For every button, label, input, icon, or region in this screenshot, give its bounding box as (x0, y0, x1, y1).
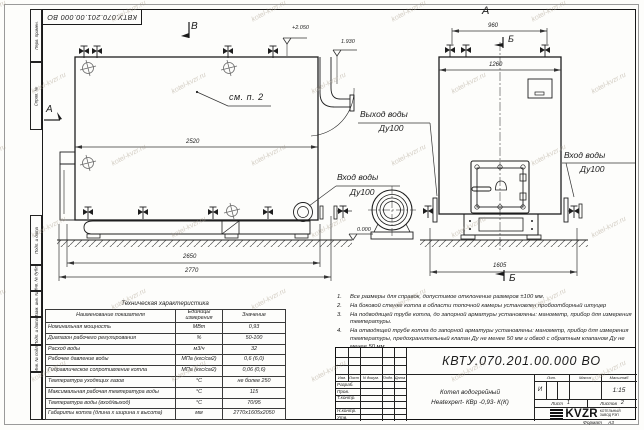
table-row: Расход водым3/ч32 (46, 344, 286, 355)
table-row: Гидравлическое сопротивление котлаМПа (к… (46, 366, 286, 377)
format-label: Формат А3 (583, 421, 614, 426)
col-podp: Подп. (382, 374, 394, 381)
spec-table: Наименование показателя Единицы измерени… (45, 309, 286, 420)
row-nkontr: Н.контр. (337, 409, 365, 414)
col-ndoc: N докум. (360, 374, 382, 381)
kvzr-logo-caption: КОТЕЛЬНЫЙ ЗАВОД РЭП (600, 410, 621, 418)
margin-cell-podp-data-1: Подп. и дата (30, 215, 42, 265)
kvzr-logo: KVZR КОТЕЛЬНЫЙ ЗАВОД РЭП (550, 408, 620, 420)
spec-table-title: Техническая характеристика (45, 300, 285, 307)
dim-960: 960 (488, 23, 498, 29)
elevation-zero: 0.000 (357, 228, 371, 234)
doc-number: КВТУ.070.201.00.000 ВО (406, 348, 637, 374)
table-row: Габариты котла (длина х ширина х высота)… (46, 409, 286, 420)
sheets-cell: Листов 2 (587, 399, 637, 407)
margin-cell-empty (30, 372, 42, 420)
table-row: Диапазон рабочего регулирования%50-100 (46, 333, 286, 344)
product-name: Котел водогрейный Heatexpert- КВр -0,93-… (406, 374, 534, 421)
inlet-right-label-line1: Вход воды (564, 151, 605, 160)
lit-value: И (534, 381, 546, 399)
note-item: 1.Все размеры для справок, допустимое от… (337, 294, 635, 302)
table-row: Номинальная мощностьМВт0,93 (46, 323, 286, 334)
inlet-left-label-line2: Ду100 (350, 188, 375, 197)
sheet-cell: Лист 1 (534, 399, 587, 407)
company-logo-cell: KVZR КОТЕЛЬНЫЙ ЗАВОД РЭП (534, 407, 637, 421)
dim-2650: 2650 (183, 254, 196, 260)
row-razrab: Разраб. (337, 383, 365, 388)
dim-2770: 2770 (185, 268, 198, 274)
elevation-top: +2.050 (292, 26, 309, 32)
top-corner-stamp: КВТУ.070.201.00.000 ВО (42, 9, 142, 25)
mass-header: Масса (569, 374, 601, 381)
table-row: Температура воды (вход/выход)°С70/95 (46, 398, 286, 409)
dim-2520: 2520 (186, 139, 199, 145)
spec-header-unit: Единицы измерения (176, 310, 223, 323)
col-list: Лист (348, 374, 360, 381)
margin-cell-sprav-no: Справ. № (30, 62, 42, 130)
row-prov: Пров. (337, 390, 365, 395)
section-letter-v: В (191, 22, 198, 32)
inlet-left-label-line1: Вход воды (337, 173, 378, 182)
spec-header-value: Значение (223, 310, 286, 323)
scale-header: Масштаб (601, 374, 637, 381)
notes-block: 1.Все размеры для справок, допустимое от… (337, 294, 635, 353)
front-view-letter-a: А (482, 6, 489, 17)
row-tkontr: Т.контр. (337, 396, 365, 401)
scale-value: 1:15 (601, 381, 637, 399)
table-row: Температура уходящих газов°Сне более 250 (46, 376, 286, 387)
section-letter-b-top: Б (508, 35, 514, 44)
margin-cell-inv-podl: Инв. № подл. (30, 345, 42, 372)
see-note-label: см. п. 2 (229, 93, 264, 102)
note-item: 2.На боковой стенке котла в области топо… (337, 303, 635, 311)
dim-1605: 1605 (493, 263, 506, 269)
margin-cell-perv-primen: Перв. примен. (30, 9, 42, 62)
spec-table-block: Техническая характеристика Наименование … (45, 300, 285, 420)
lit-header: Лит. (534, 374, 569, 381)
title-block: Изм. Лист N докум. Подп. Дата Разраб. Пр… (335, 347, 636, 420)
product-name-line2: Heatexpert- КВр -0,93- К(К) (431, 398, 509, 407)
col-izm: Изм. (336, 374, 348, 381)
product-name-line1: Котел водогрейный (440, 388, 500, 397)
top-stamp-number: КВТУ.070.201.00.000 ВО (47, 13, 137, 22)
kvzr-logo-text: KVZR (565, 408, 598, 420)
section-letter-b-bottom: Б (509, 274, 516, 284)
row-utv: Утв. (337, 416, 365, 421)
col-data: Дата (394, 374, 406, 381)
section-letter-a-left: А (46, 105, 53, 115)
spec-header-name: Наименование показателя (46, 310, 176, 323)
outlet-label-line2: Ду100 (379, 124, 404, 133)
margin-cell-vzam-inv: Взам. инв. № (30, 291, 42, 317)
note-item: 3.На подводящей трубе котла, до запорной… (337, 312, 635, 328)
outlet-label-line1: Выход воды (360, 110, 408, 119)
drawing-sheet: Перв. примен. Справ. № Подп. и дата Инв.… (0, 0, 644, 430)
elevation-mid: 1.930 (341, 40, 355, 46)
inlet-right-label-line2: Ду100 (580, 165, 605, 174)
dim-1260: 1260 (489, 62, 502, 68)
table-row: Рабочее давление водыМПа (кгс/см2)0,6 (6… (46, 355, 286, 366)
kvzr-logo-icon (550, 409, 563, 420)
margin-cell-podp-data-2: Подп. и дата (30, 317, 42, 345)
margin-cell-inv-dubl: Инв. № дубл. (30, 265, 42, 291)
table-row: Максимальная рабочая температура воды°С1… (46, 387, 286, 398)
